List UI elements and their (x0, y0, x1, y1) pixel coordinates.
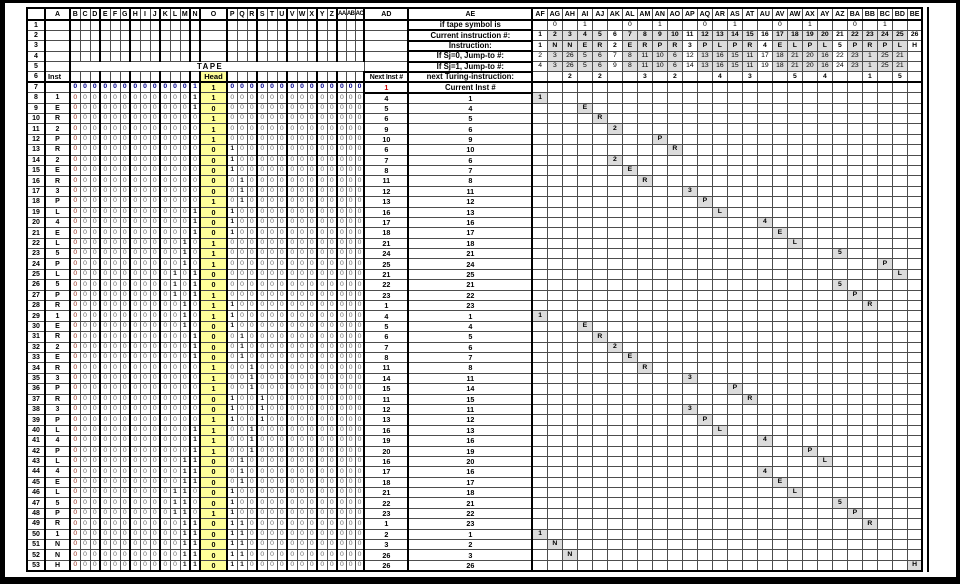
tape-cell[interactable]: 0 (150, 103, 160, 113)
program-cell[interactable] (817, 446, 832, 456)
tape-cell[interactable]: 0 (355, 332, 364, 342)
program-cell[interactable] (577, 186, 592, 196)
program-cell[interactable] (862, 488, 877, 498)
program-cell[interactable] (847, 124, 862, 134)
program-cell[interactable] (907, 363, 922, 373)
tape-cell[interactable]: 0 (90, 82, 100, 92)
tape-cell[interactable]: 0 (257, 82, 267, 92)
program-cell[interactable] (787, 155, 802, 165)
head-cell[interactable]: 0 (200, 332, 227, 342)
cell[interactable] (237, 30, 247, 40)
program-cell[interactable] (622, 145, 637, 155)
tape-cell[interactable]: 0 (287, 259, 297, 269)
tape-cell[interactable]: 0 (287, 519, 297, 529)
program-cell[interactable] (592, 529, 607, 539)
tape-cell[interactable]: 0 (287, 197, 297, 207)
row-number[interactable]: 4 (27, 51, 45, 61)
cell[interactable] (150, 72, 160, 82)
tape-cell[interactable]: 0 (307, 93, 317, 103)
tape-cell[interactable]: 0 (160, 197, 170, 207)
tape-cell[interactable]: 0 (327, 280, 337, 290)
program-cell[interactable] (712, 238, 727, 248)
program-cell[interactable] (622, 467, 637, 477)
program-cell[interactable] (907, 145, 922, 155)
tape-cell[interactable]: 0 (150, 259, 160, 269)
program-cell[interactable] (787, 249, 802, 259)
tape-cell[interactable]: 0 (100, 103, 110, 113)
program-cell[interactable] (652, 145, 667, 155)
inst-cell[interactable]: P (45, 259, 70, 269)
program-cell[interactable] (907, 394, 922, 404)
tape-cell[interactable]: 0 (80, 269, 90, 279)
program-cell[interactable] (532, 550, 547, 560)
program-cell[interactable] (562, 207, 577, 217)
trace-cell[interactable]: 3 (682, 186, 697, 196)
program-cell[interactable] (817, 415, 832, 425)
program-cell[interactable] (712, 446, 727, 456)
tape-cell[interactable]: 0 (287, 176, 297, 186)
tape-cell[interactable]: 0 (257, 93, 267, 103)
row-number[interactable]: 25 (27, 269, 45, 279)
tape-cell[interactable]: 0 (355, 103, 364, 113)
cell[interactable] (237, 72, 247, 82)
program-cell[interactable] (652, 301, 667, 311)
program-cell[interactable] (877, 103, 892, 113)
cell[interactable] (337, 72, 346, 82)
program-cell[interactable] (607, 560, 622, 570)
tape-cell[interactable]: 0 (110, 342, 120, 352)
program-cell[interactable] (892, 508, 907, 518)
program-cell[interactable] (742, 321, 757, 331)
next-inst-cell[interactable]: 16 (364, 207, 408, 217)
tape-cell[interactable]: 0 (120, 425, 130, 435)
program-cell[interactable] (712, 384, 727, 394)
cell[interactable] (227, 72, 237, 82)
program-cell[interactable] (772, 290, 787, 300)
row-number[interactable]: 14 (27, 155, 45, 165)
cell[interactable] (337, 30, 346, 40)
program-cell[interactable] (592, 20, 607, 30)
program-cell[interactable] (547, 373, 562, 383)
program-cell[interactable] (727, 186, 742, 196)
program-cell[interactable] (637, 508, 652, 518)
program-cell[interactable] (562, 456, 577, 466)
tape-cell[interactable]: 0 (130, 259, 140, 269)
next-inst-cell[interactable]: 21 (364, 238, 408, 248)
tape-cell[interactable]: 0 (170, 321, 180, 331)
tape-cell[interactable]: 0 (140, 269, 150, 279)
trace-cell[interactable]: L (892, 269, 907, 279)
tape-cell[interactable]: 0 (277, 228, 287, 238)
tape-cell[interactable]: 0 (257, 114, 267, 124)
inst-cell[interactable]: L (45, 425, 70, 435)
tape-cell[interactable]: 0 (247, 498, 257, 508)
next-inst-cell[interactable]: 1 (364, 301, 408, 311)
tape-cell[interactable]: 0 (130, 238, 140, 248)
tape-cell[interactable]: 0 (130, 363, 140, 373)
tape-cell[interactable]: 0 (355, 259, 364, 269)
trace-cell[interactable]: 5 (832, 249, 847, 259)
program-cell[interactable] (907, 155, 922, 165)
tape-cell[interactable]: 0 (297, 134, 307, 144)
program-cell[interactable] (577, 508, 592, 518)
cell[interactable] (287, 72, 297, 82)
tape-cell[interactable]: 0 (277, 529, 287, 539)
program-cell[interactable] (532, 332, 547, 342)
program-cell[interactable] (562, 415, 577, 425)
tape-cell[interactable]: 0 (327, 332, 337, 342)
tape-cell[interactable]: 0 (287, 560, 297, 570)
tape-cell[interactable]: 0 (337, 82, 346, 92)
program-cell[interactable] (667, 519, 682, 529)
program-cell[interactable] (787, 519, 802, 529)
program-cell[interactable] (712, 269, 727, 279)
tape-cell[interactable]: 0 (307, 238, 317, 248)
tape-cell[interactable]: 0 (130, 373, 140, 383)
tape-cell[interactable]: 0 (90, 560, 100, 570)
tape-cell[interactable]: 0 (140, 176, 150, 186)
program-cell[interactable] (742, 217, 757, 227)
program-cell[interactable] (877, 550, 892, 560)
program-cell[interactable] (817, 508, 832, 518)
program-cell[interactable] (562, 259, 577, 269)
tape-cell[interactable]: 0 (120, 217, 130, 227)
tape-cell[interactable]: 0 (100, 145, 110, 155)
program-cell[interactable] (652, 155, 667, 165)
cell[interactable] (327, 72, 337, 82)
tape-cell[interactable]: 0 (237, 103, 247, 113)
tape-cell[interactable]: 0 (130, 342, 140, 352)
tape-cell[interactable]: 0 (247, 238, 257, 248)
tape-cell[interactable]: 0 (90, 311, 100, 321)
tape-cell[interactable]: 1 (190, 353, 200, 363)
tape-cell[interactable]: 0 (80, 228, 90, 238)
program-cell[interactable] (742, 488, 757, 498)
program-cell[interactable] (652, 217, 667, 227)
next-inst-cell[interactable]: 4 (364, 311, 408, 321)
tape-cell[interactable]: 0 (267, 404, 277, 414)
program-cell[interactable] (832, 353, 847, 363)
program-cell[interactable] (697, 540, 712, 550)
program-cell[interactable] (907, 301, 922, 311)
trace-cell[interactable]: R (592, 114, 607, 124)
cell[interactable] (237, 20, 247, 30)
tape-cell[interactable]: 0 (327, 217, 337, 227)
tape-cell[interactable]: 0 (307, 114, 317, 124)
program-cell[interactable] (862, 508, 877, 518)
tape-cell[interactable]: 0 (247, 165, 257, 175)
program-cell[interactable]: 20 (802, 51, 817, 61)
program-cell[interactable] (757, 560, 772, 570)
program-cell[interactable] (787, 384, 802, 394)
tape-cell[interactable]: 0 (130, 550, 140, 560)
tape-cell[interactable]: 0 (150, 446, 160, 456)
program-cell[interactable] (787, 550, 802, 560)
program-cell[interactable] (847, 269, 862, 279)
program-cell[interactable] (772, 280, 787, 290)
program-cell[interactable] (547, 186, 562, 196)
tape-cell[interactable]: 0 (160, 488, 170, 498)
tape-cell[interactable]: 0 (70, 321, 80, 331)
tape-cell[interactable]: 0 (337, 197, 346, 207)
current-inst-cell[interactable]: 6 (408, 342, 532, 352)
tape-cell[interactable]: 0 (346, 93, 355, 103)
column-header[interactable]: AL (622, 8, 637, 20)
inst-cell[interactable]: 3 (45, 404, 70, 414)
tape-cell[interactable]: 0 (317, 529, 327, 539)
tape-cell[interactable]: 0 (80, 467, 90, 477)
tape-cell[interactable]: 0 (247, 280, 257, 290)
program-cell[interactable]: L (787, 41, 802, 51)
program-cell[interactable] (532, 488, 547, 498)
tape-cell[interactable]: 0 (257, 124, 267, 134)
tape-cell[interactable]: 0 (70, 477, 80, 487)
tape-cell[interactable]: 0 (287, 436, 297, 446)
tape-cell[interactable]: 0 (150, 238, 160, 248)
program-cell[interactable] (637, 436, 652, 446)
program-cell[interactable] (577, 114, 592, 124)
program-cell[interactable] (802, 124, 817, 134)
program-cell[interactable] (697, 321, 712, 331)
program-cell[interactable] (652, 93, 667, 103)
program-cell[interactable] (682, 207, 697, 217)
inst-cell[interactable]: E (45, 103, 70, 113)
program-cell[interactable] (667, 508, 682, 518)
trace-cell[interactable]: E (772, 477, 787, 487)
program-cell[interactable] (652, 249, 667, 259)
program-cell[interactable] (802, 103, 817, 113)
program-cell[interactable] (802, 249, 817, 259)
tape-cell[interactable]: 0 (130, 498, 140, 508)
program-cell[interactable] (787, 145, 802, 155)
program-cell[interactable] (847, 436, 862, 446)
program-cell[interactable] (712, 488, 727, 498)
tape-cell[interactable]: 0 (90, 124, 100, 134)
program-cell[interactable] (637, 488, 652, 498)
tape-cell[interactable]: 0 (110, 301, 120, 311)
program-cell[interactable]: 26 (562, 62, 577, 72)
tape-cell[interactable]: 1 (227, 488, 237, 498)
tape-cell[interactable]: 0 (227, 363, 237, 373)
tape-cell[interactable]: 0 (150, 550, 160, 560)
program-cell[interactable] (787, 165, 802, 175)
program-cell[interactable] (802, 228, 817, 238)
tape-cell[interactable]: 0 (237, 280, 247, 290)
tape-cell[interactable]: 0 (297, 404, 307, 414)
tape-cell[interactable]: 0 (170, 436, 180, 446)
column-header[interactable]: T (267, 8, 277, 20)
tape-cell[interactable]: 0 (297, 217, 307, 227)
program-cell[interactable] (622, 186, 637, 196)
tape-cell[interactable]: 0 (317, 259, 327, 269)
tape-cell[interactable]: 0 (337, 373, 346, 383)
column-header[interactable]: B (70, 8, 80, 20)
program-cell[interactable] (802, 321, 817, 331)
program-cell[interactable] (712, 311, 727, 321)
tape-cell[interactable]: 0 (110, 280, 120, 290)
tape-cell[interactable]: 0 (150, 124, 160, 134)
tape-cell[interactable]: 0 (150, 269, 160, 279)
tape-cell[interactable]: 0 (180, 217, 190, 227)
tape-cell[interactable]: 0 (237, 488, 247, 498)
program-cell[interactable] (592, 519, 607, 529)
tape-cell[interactable]: 0 (277, 467, 287, 477)
program-cell[interactable] (637, 20, 652, 30)
tape-cell[interactable]: 0 (227, 249, 237, 259)
column-header[interactable]: BB (862, 8, 877, 20)
program-cell[interactable] (757, 301, 772, 311)
cell[interactable] (160, 51, 170, 61)
tape-cell[interactable]: 0 (90, 373, 100, 383)
cell[interactable] (307, 41, 317, 51)
tape-cell[interactable]: 0 (80, 425, 90, 435)
program-cell[interactable]: 1 (877, 20, 892, 30)
tape-cell[interactable]: 0 (277, 114, 287, 124)
tape-cell[interactable]: 0 (180, 280, 190, 290)
program-cell[interactable] (682, 197, 697, 207)
current-inst-cell[interactable]: 22 (408, 508, 532, 518)
program-cell[interactable] (757, 415, 772, 425)
program-cell[interactable] (682, 311, 697, 321)
program-cell[interactable] (637, 228, 652, 238)
program-cell[interactable] (757, 425, 772, 435)
tape-cell[interactable]: 0 (277, 477, 287, 487)
program-cell[interactable] (832, 155, 847, 165)
program-cell[interactable] (787, 311, 802, 321)
tape-cell[interactable]: 0 (355, 145, 364, 155)
next-inst-cell[interactable]: 6 (364, 114, 408, 124)
tape-cell[interactable]: 0 (100, 467, 110, 477)
tape-cell[interactable]: 0 (297, 477, 307, 487)
program-cell[interactable]: 0 (547, 20, 562, 30)
head-cell[interactable]: 0 (200, 280, 227, 290)
program-cell[interactable] (802, 353, 817, 363)
program-cell[interactable] (742, 103, 757, 113)
cell[interactable] (130, 20, 140, 30)
tape-cell[interactable]: 1 (190, 228, 200, 238)
program-cell[interactable] (877, 238, 892, 248)
program-cell[interactable] (907, 415, 922, 425)
program-cell[interactable] (832, 404, 847, 414)
program-cell[interactable]: 2 (562, 72, 577, 82)
program-cell[interactable] (682, 20, 697, 30)
program-cell[interactable] (907, 197, 922, 207)
inst-cell[interactable]: P (45, 508, 70, 518)
tape-cell[interactable]: 0 (297, 311, 307, 321)
program-cell[interactable] (712, 550, 727, 560)
program-cell[interactable] (667, 560, 682, 570)
tape-cell[interactable]: 0 (346, 353, 355, 363)
program-cell[interactable] (577, 404, 592, 414)
tape-cell[interactable]: 0 (70, 332, 80, 342)
tape-cell[interactable]: 0 (140, 238, 150, 248)
cell[interactable] (120, 72, 130, 82)
tape-cell[interactable]: 0 (110, 145, 120, 155)
tape-cell[interactable]: 0 (80, 321, 90, 331)
tape-cell[interactable]: 0 (237, 124, 247, 134)
tape-cell[interactable]: 0 (267, 280, 277, 290)
tape-cell[interactable]: 1 (227, 301, 237, 311)
program-cell[interactable]: 21 (832, 30, 847, 40)
program-cell[interactable] (907, 93, 922, 103)
program-cell[interactable] (847, 238, 862, 248)
program-cell[interactable] (637, 186, 652, 196)
program-cell[interactable] (847, 186, 862, 196)
program-cell[interactable] (712, 373, 727, 383)
program-cell[interactable] (757, 145, 772, 155)
program-cell[interactable] (847, 342, 862, 352)
row-number[interactable]: 42 (27, 446, 45, 456)
program-cell[interactable] (742, 425, 757, 435)
tape-cell[interactable]: 1 (170, 488, 180, 498)
program-cell[interactable] (862, 93, 877, 103)
program-cell[interactable] (772, 249, 787, 259)
tape-cell[interactable]: 0 (297, 93, 307, 103)
tape-cell[interactable]: 0 (355, 519, 364, 529)
program-cell[interactable] (652, 446, 667, 456)
tape-cell[interactable]: 0 (247, 290, 257, 300)
row-number[interactable]: 44 (27, 467, 45, 477)
program-cell[interactable] (817, 311, 832, 321)
tape-cell[interactable]: 0 (317, 176, 327, 186)
tape-cell[interactable]: 0 (110, 290, 120, 300)
tape-cell[interactable]: 0 (267, 155, 277, 165)
program-cell[interactable] (697, 519, 712, 529)
tape-cell[interactable]: 0 (70, 488, 80, 498)
program-cell[interactable]: 6 (667, 62, 682, 72)
program-cell[interactable] (592, 103, 607, 113)
program-cell[interactable] (862, 155, 877, 165)
tape-cell[interactable]: 0 (80, 124, 90, 134)
program-cell[interactable] (847, 217, 862, 227)
tape-cell[interactable]: 0 (297, 488, 307, 498)
program-cell[interactable] (577, 228, 592, 238)
cell[interactable] (130, 41, 140, 51)
program-cell[interactable] (742, 301, 757, 311)
program-cell[interactable] (592, 540, 607, 550)
program-cell[interactable] (877, 249, 892, 259)
column-header[interactable]: AP (682, 8, 697, 20)
row-number[interactable]: 53 (27, 560, 45, 570)
tape-cell[interactable]: 0 (355, 207, 364, 217)
tape-cell[interactable]: 0 (337, 384, 346, 394)
tape-cell[interactable]: 0 (160, 176, 170, 186)
tape-cell[interactable]: 1 (227, 550, 237, 560)
tape-cell[interactable]: 0 (100, 446, 110, 456)
tape-cell[interactable]: 1 (190, 436, 200, 446)
tape-cell[interactable]: 0 (297, 145, 307, 155)
program-cell[interactable] (877, 186, 892, 196)
program-cell[interactable] (682, 145, 697, 155)
tape-cell[interactable]: 0 (277, 290, 287, 300)
program-cell[interactable] (757, 165, 772, 175)
tape-cell[interactable]: 1 (257, 394, 267, 404)
tape-cell[interactable]: 0 (180, 228, 190, 238)
program-cell[interactable] (637, 456, 652, 466)
program-cell[interactable] (712, 394, 727, 404)
cell[interactable] (297, 20, 307, 30)
row-number[interactable]: 8 (27, 93, 45, 103)
program-cell[interactable] (817, 145, 832, 155)
program-cell[interactable] (817, 134, 832, 144)
trace-cell[interactable]: 2 (607, 124, 622, 134)
program-cell[interactable] (652, 529, 667, 539)
program-cell[interactable] (907, 467, 922, 477)
program-cell[interactable] (757, 363, 772, 373)
tape-cell[interactable]: 0 (267, 508, 277, 518)
program-cell[interactable] (667, 488, 682, 498)
tape-cell[interactable]: 0 (100, 249, 110, 259)
